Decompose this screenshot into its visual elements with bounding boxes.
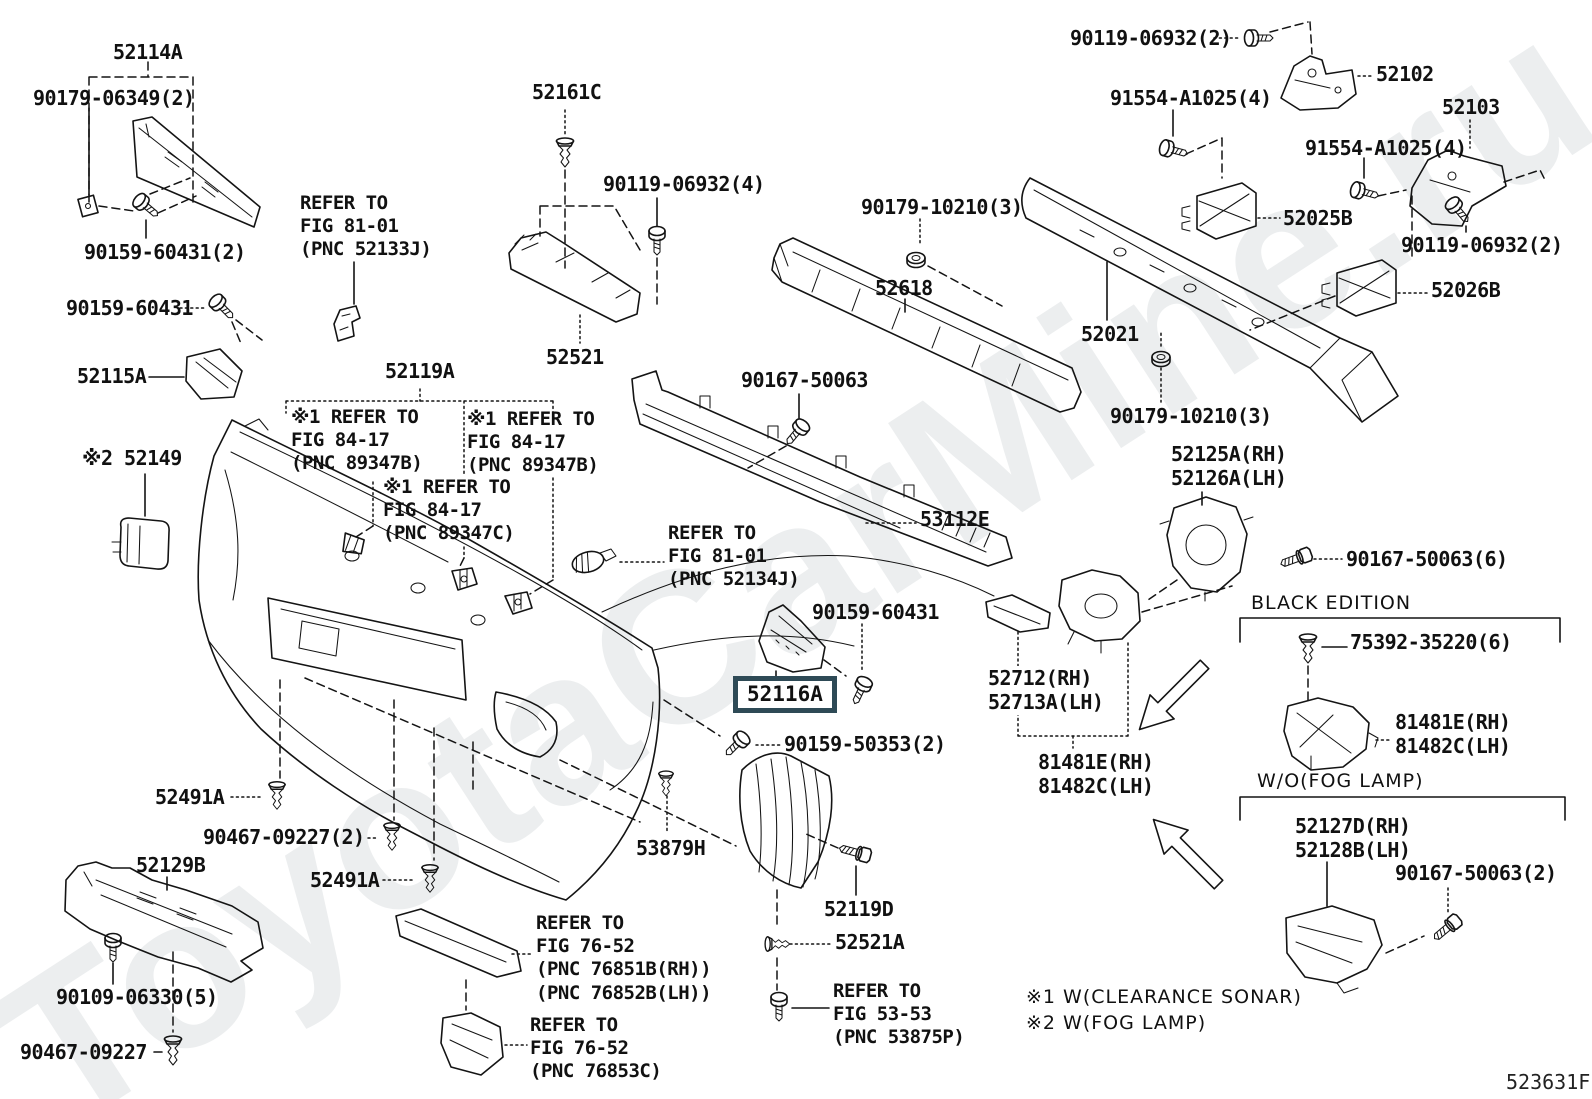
part-label-90119-06932-4[interactable]: 90119-06932(4)	[603, 172, 765, 196]
part-label-90467-09227[interactable]: 90467-09227	[20, 1040, 147, 1064]
group-header-wo-fog-lamp: W/O(FOG LAMP)	[1257, 770, 1423, 793]
part-label-90159-60431-a[interactable]: 90159-60431	[66, 296, 193, 320]
retainer-52521-drawing	[509, 206, 640, 343]
parts-diagram-front-bumper: ToyotaCarMine.ru	[0, 0, 1592, 1099]
part-label-52521a[interactable]: 52521A	[835, 930, 904, 954]
sonar-sensor-52149-drawing	[112, 474, 169, 569]
part-label-52521[interactable]: 52521	[546, 345, 604, 369]
ref-note-76853c: REFER TO FIG 76-52 (PNC 76853C)	[530, 1014, 661, 1084]
garnish-52712-group	[986, 570, 1232, 748]
ref-note-52133j: REFER TO FIG 81-01 (PNC 52133J)	[300, 192, 431, 262]
highlighted-part-box-52116a[interactable]: 52116A	[733, 676, 837, 713]
part-label-53112e[interactable]: 53112E	[920, 507, 989, 531]
clip-52133j-drawing	[334, 262, 360, 341]
part-label-90179-10210-b[interactable]: 90179-10210(3)	[1110, 404, 1272, 428]
part-label-52025b[interactable]: 52025B	[1283, 206, 1352, 230]
part-label-52491a-a[interactable]: 52491A	[155, 785, 224, 809]
part-label-52129b[interactable]: 52129B	[136, 853, 205, 877]
part-label-52102[interactable]: 52102	[1376, 62, 1434, 86]
part-label-90159-60431-2[interactable]: 90159-60431(2)	[84, 240, 246, 264]
part-label-90467-09227-2[interactable]: 90467-09227(2)	[203, 825, 365, 849]
group-header-black-edition: BLACK EDITION	[1251, 592, 1411, 615]
ref-note-52134j: REFER TO FIG 81-01 (PNC 52134J)	[668, 522, 799, 592]
part-label-75392-35220[interactable]: 75392-35220(6)	[1350, 630, 1512, 654]
part-label-52119d[interactable]: 52119D	[824, 897, 893, 921]
part-label-52618[interactable]: 52618	[875, 276, 933, 300]
part-label-90159-50353[interactable]: 90159-50353(2)	[784, 732, 946, 756]
part-label-90109-06330[interactable]: 90109-06330(5)	[56, 985, 218, 1009]
part-label-52114a[interactable]: 52114A	[113, 40, 182, 64]
part-label-90179-10210-a[interactable]: 90179-10210(3)	[861, 195, 1023, 219]
screw-90119-06932-4-drawing	[649, 198, 665, 304]
part-label-81481e-center[interactable]: 81481E(RH) 81482C(LH)	[1038, 750, 1153, 799]
ref-note-53875p: REFER TO FIG 53-53 (PNC 53875P)	[833, 980, 964, 1050]
part-label-91554-a1025-a[interactable]: 91554-A1025(4)	[1110, 86, 1272, 110]
part-label-52115a[interactable]: 52115A	[77, 364, 146, 388]
part-label-52026b[interactable]: 52026B	[1431, 278, 1500, 302]
part-label-52125a-52126a[interactable]: 52125A(RH) 52126A(LH)	[1171, 442, 1286, 491]
part-label-90179-06349[interactable]: 90179-06349(2)	[33, 86, 195, 110]
part-label-90119-06932-2b[interactable]: 90119-06932(2)	[1401, 233, 1563, 257]
part-label-53879h[interactable]: 53879H	[636, 836, 705, 860]
part-label-52161c[interactable]: 52161C	[532, 80, 601, 104]
part-label-90167-50063-6[interactable]: 90167-50063(6)	[1346, 547, 1508, 571]
part-label-52491a-b[interactable]: 52491A	[310, 868, 379, 892]
note-fog-lamp: ※2 W(FOG LAMP)	[1026, 1012, 1206, 1035]
part-label-91554-a1025-b[interactable]: 91554-A1025(4)	[1305, 136, 1467, 160]
grommet-52134j-drawing	[570, 548, 664, 576]
part-label-52116a: 52116A	[747, 682, 823, 706]
part-label-52149[interactable]: ※2 52149	[82, 446, 182, 470]
part-label-90167-50063[interactable]: 90167-50063	[741, 368, 868, 392]
ref-note-89347b-right: ※1 REFER TO FIG 84-17 (PNC 89347B)	[467, 408, 598, 478]
part-label-52021[interactable]: 52021	[1081, 322, 1139, 346]
spacer-52025b-drawing	[1158, 110, 1280, 239]
part-label-90167-50063-2[interactable]: 90167-50063(2)	[1395, 861, 1557, 885]
part-label-90119-06932-2a[interactable]: 90119-06932(2)	[1070, 26, 1232, 50]
figure-code: 523631F	[1506, 1070, 1590, 1094]
part-label-52119a[interactable]: 52119A	[385, 359, 454, 383]
part-label-52712-52713a[interactable]: 52712(RH) 52713A(LH)	[986, 666, 1105, 715]
ref-note-89347b-left: ※1 REFER TO FIG 84-17 (PNC 89347B)	[291, 406, 422, 476]
nut-90179-10210-b-drawing	[1152, 332, 1170, 402]
note-clearance-sonar: ※1 W(CLEARANCE SONAR)	[1026, 986, 1302, 1009]
fog-bezel-52125a-drawing	[1148, 492, 1342, 601]
ref-note-76851b: REFER TO FIG 76-52 (PNC 76851B(RH)) (PNC…	[536, 912, 711, 1005]
part-label-81481e-right[interactable]: 81481E(RH) 81482C(LH)	[1395, 710, 1510, 759]
ref-note-89347c: ※1 REFER TO FIG 84-17 (PNC 89347C)	[383, 476, 514, 546]
part-label-52127d-52128b[interactable]: 52127D(RH) 52128B(LH)	[1295, 814, 1410, 863]
part-label-52103[interactable]: 52103	[1442, 95, 1500, 119]
part-label-90159-60431-b[interactable]: 90159-60431	[812, 600, 939, 624]
rocker-fig76-group	[396, 909, 533, 1075]
